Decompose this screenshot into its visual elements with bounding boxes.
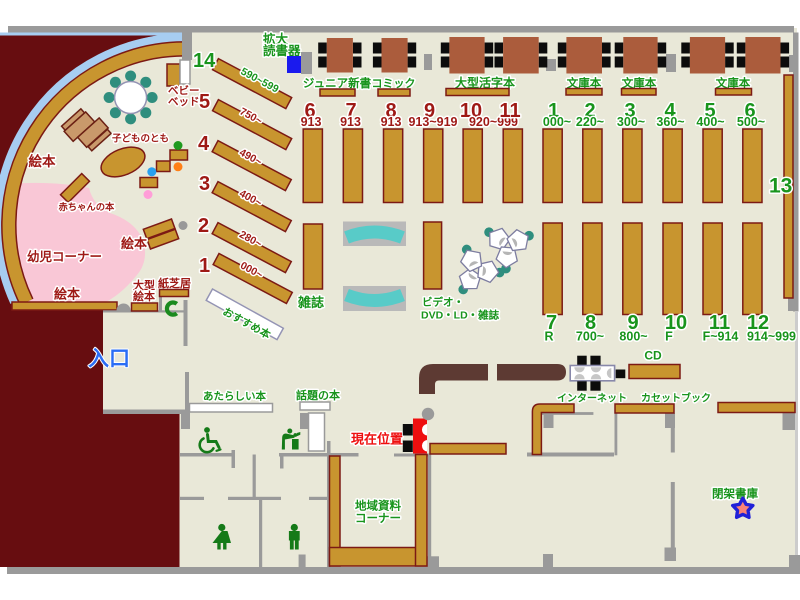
svg-text:紙芝居: 紙芝居	[158, 276, 191, 290]
svg-text:CD: CD	[644, 349, 662, 363]
svg-text:コミック: コミック	[372, 77, 416, 90]
svg-text:913: 913	[381, 115, 402, 129]
svg-text:913: 913	[301, 115, 322, 129]
svg-text:3: 3	[199, 173, 210, 195]
svg-text:ベッド: ベッド	[168, 96, 200, 108]
svg-text:4: 4	[198, 133, 210, 155]
svg-text:絵本: 絵本	[121, 236, 147, 251]
svg-text:914~999: 914~999	[747, 330, 796, 344]
svg-text:赤ちゃんの本: 赤ちゃんの本	[59, 201, 115, 212]
svg-text:R: R	[544, 330, 553, 344]
svg-text:14: 14	[193, 50, 216, 72]
svg-text:400~: 400~	[696, 115, 724, 129]
svg-text:雑誌: 雑誌	[297, 295, 324, 310]
svg-text:ジュニア新書: ジュニア新書	[303, 76, 372, 90]
svg-text:ビデオ・: ビデオ・	[422, 296, 464, 309]
svg-text:300~: 300~	[617, 115, 645, 129]
svg-text:地域資料: 地域資料	[355, 499, 401, 513]
svg-text:000~: 000~	[543, 115, 571, 129]
svg-text:入口: 入口	[88, 348, 130, 371]
svg-text:絵本: 絵本	[133, 289, 155, 303]
svg-text:読書器: 読書器	[263, 43, 301, 58]
svg-text:800~: 800~	[619, 330, 647, 344]
svg-text:閉架書庫: 閉架書庫	[712, 487, 758, 501]
svg-text:あたらしい本: あたらしい本	[203, 390, 266, 403]
svg-text:話題の本: 話題の本	[296, 388, 340, 402]
svg-text:220~: 220~	[576, 115, 604, 129]
svg-text:5: 5	[199, 91, 210, 113]
svg-text:幼児コーナー: 幼児コーナー	[27, 249, 102, 264]
svg-text:700~: 700~	[576, 330, 604, 344]
svg-text:913~919: 913~919	[408, 115, 457, 129]
svg-text:913: 913	[340, 115, 361, 129]
svg-text:絵本: 絵本	[54, 287, 80, 302]
svg-text:F: F	[665, 330, 673, 344]
svg-text:子どものとも: 子どものとも	[112, 133, 169, 145]
svg-text:現在位置: 現在位置	[351, 432, 403, 447]
svg-text:インターネット: インターネット	[557, 393, 627, 405]
svg-text:カセットブック: カセットブック	[641, 392, 711, 405]
svg-text:13: 13	[769, 175, 792, 198]
svg-text:コーナー: コーナー	[355, 512, 401, 525]
svg-text:絵本: 絵本	[29, 153, 56, 169]
svg-text:11: 11	[499, 100, 520, 122]
svg-text:1: 1	[199, 255, 210, 277]
svg-text:DVD・LD・雑誌: DVD・LD・雑誌	[421, 309, 500, 322]
svg-text:360~: 360~	[656, 115, 684, 129]
svg-text:F~914: F~914	[703, 330, 739, 344]
svg-text:大型: 大型	[133, 278, 155, 292]
svg-text:2: 2	[198, 215, 209, 237]
svg-text:500~: 500~	[737, 115, 765, 129]
